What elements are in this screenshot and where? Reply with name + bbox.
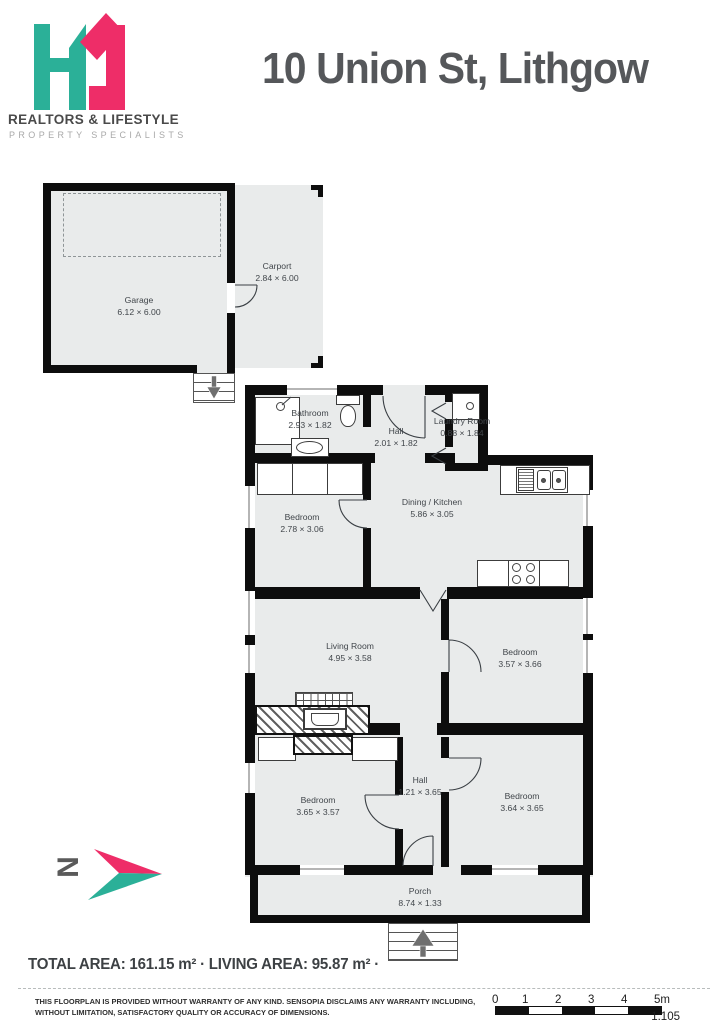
room-label-bedroom-2: Bedroom3.57 × 3.66 [498,646,541,670]
living-area-label: LIVING AREA: [209,956,308,973]
scale-tick: 3 [588,994,594,1006]
room-label-hall-bottom: Hall1.21 × 3.65 [398,774,441,798]
scale-tick-labels: 0 1 2 3 4 5m [492,994,682,1006]
disclaimer-line-2: WITHOUT LIMITATION, SATISFACTORY QUALITY… [35,1007,486,1018]
room-label-garage: Garage6.12 × 6.00 [117,294,160,318]
scale-ratio: 1:105 [620,1011,680,1023]
scale-tick: 0 [492,994,498,1006]
north-label: N [52,856,86,878]
room-label-hall-top: Hall2.01 × 1.82 [374,425,417,449]
room-label-porch: Porch8.74 × 1.33 [398,885,441,909]
total-area-label: TOTAL AREA: [28,956,126,973]
scale-tick: 4 [621,994,627,1006]
divider [18,988,710,989]
scale-tick: 1 [522,994,528,1006]
room-label-bedroom-1: Bedroom2.78 × 3.06 [280,511,323,535]
room-label-living-room: Living Room4.95 × 3.58 [326,640,374,664]
room-label-dining-kitchen: Dining / Kitchen5.86 × 3.05 [402,496,462,520]
disclaimer-line-1: THIS FLOORPLAN IS PROVIDED WITHOUT WARRA… [35,996,486,1007]
scale-tick: 2 [555,994,561,1006]
north-arrow-icon [88,845,163,905]
trailing-dot: · [374,956,379,973]
total-area-value: 161.15 m² [129,956,196,973]
disclaimer: THIS FLOORPLAN IS PROVIDED WITHOUT WARRA… [35,996,486,1019]
area-summary: TOTAL AREA:161.15 m²·LIVING AREA:95.87 m… [28,956,383,974]
room-label-laundry: Laundry Room0.88 × 1.84 [434,415,490,439]
floorplan-sheet: 10 Union St, Lithgow REALTORS & LIFESTYL… [0,0,725,1024]
scale-tick: 5m [654,994,670,1006]
room-label-bedroom-4: Bedroom3.64 × 3.65 [500,790,543,814]
room-label-bathroom: Bathroom2.93 × 1.82 [288,407,331,431]
room-label-bedroom-3: Bedroom3.65 × 3.57 [296,794,339,818]
living-area-value: 95.87 m² [312,956,371,973]
separator-dot: · [200,956,205,973]
room-label-carport: Carport2.84 × 6.00 [255,260,298,284]
